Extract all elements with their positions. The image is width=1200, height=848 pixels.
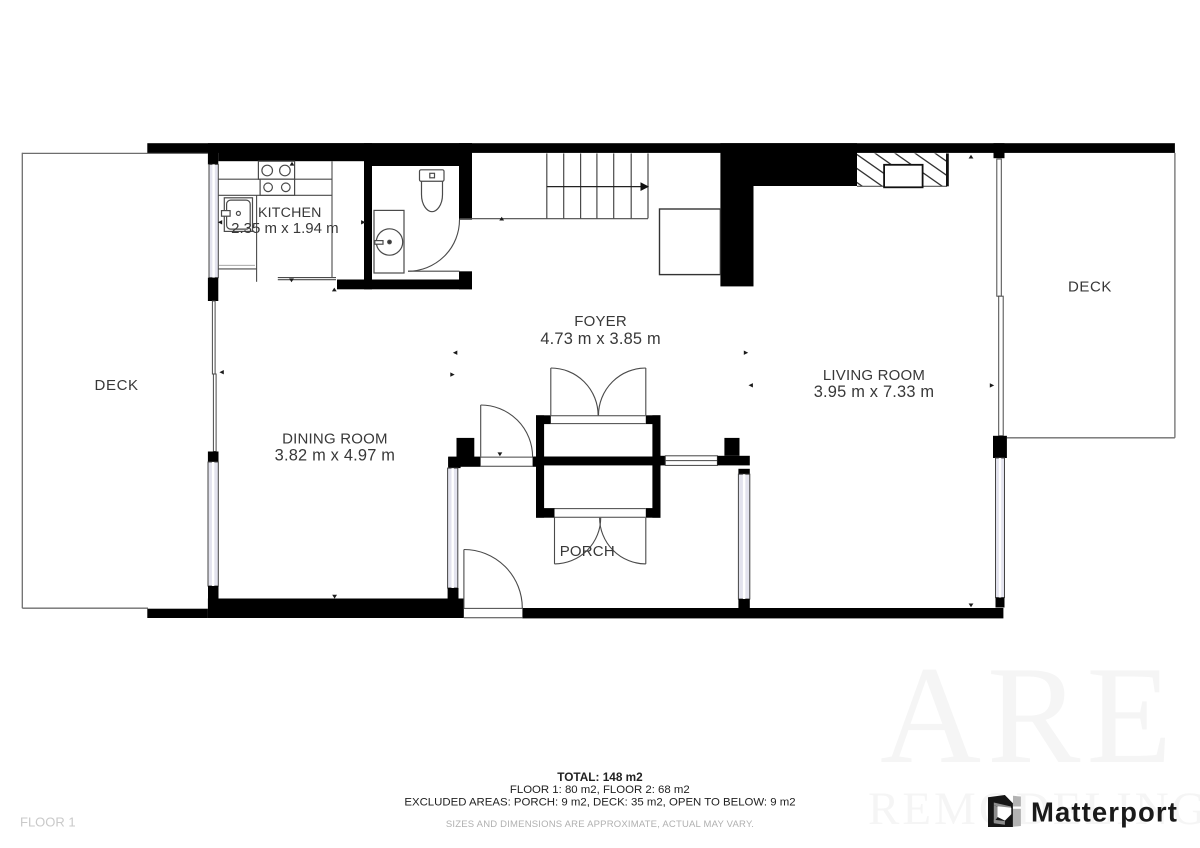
svg-text:FLOOR 1: FLOOR 1 [20, 815, 76, 830]
svg-text:DINING ROOM: DINING ROOM [282, 431, 388, 448]
svg-text:DECK: DECK [95, 377, 139, 394]
svg-text:3.82 m x 4.97 m: 3.82 m x 4.97 m [275, 447, 396, 465]
svg-text:3.95 m x 7.33 m: 3.95 m x 7.33 m [814, 383, 935, 401]
svg-text:2.35 m x 1.94 m: 2.35 m x 1.94 m [231, 220, 339, 237]
svg-text:Matterport: Matterport [1031, 797, 1178, 828]
svg-text:KITCHEN: KITCHEN [258, 205, 322, 221]
svg-text:FOYER: FOYER [574, 313, 627, 330]
svg-text:EXCLUDED AREAS: PORCH: 9 m2, D: EXCLUDED AREAS: PORCH: 9 m2, DECK: 35 m2… [404, 797, 795, 809]
svg-text:SIZES AND DIMENSIONS ARE APPRO: SIZES AND DIMENSIONS ARE APPROXIMATE, AC… [446, 819, 754, 830]
svg-text:FLOOR 1: 80 m2, FLOOR 2: 68 m2: FLOOR 1: 80 m2, FLOOR 2: 68 m2 [510, 784, 690, 796]
svg-text:LIVING ROOM: LIVING ROOM [823, 367, 925, 384]
svg-text:TOTAL: 148 m2: TOTAL: 148 m2 [557, 770, 643, 784]
svg-text:ARE: ARE [880, 638, 1178, 793]
svg-text:PORCH: PORCH [560, 543, 615, 560]
svg-text:DECK: DECK [1068, 279, 1112, 296]
svg-text:4.73 m x 3.85 m: 4.73 m x 3.85 m [540, 330, 661, 348]
